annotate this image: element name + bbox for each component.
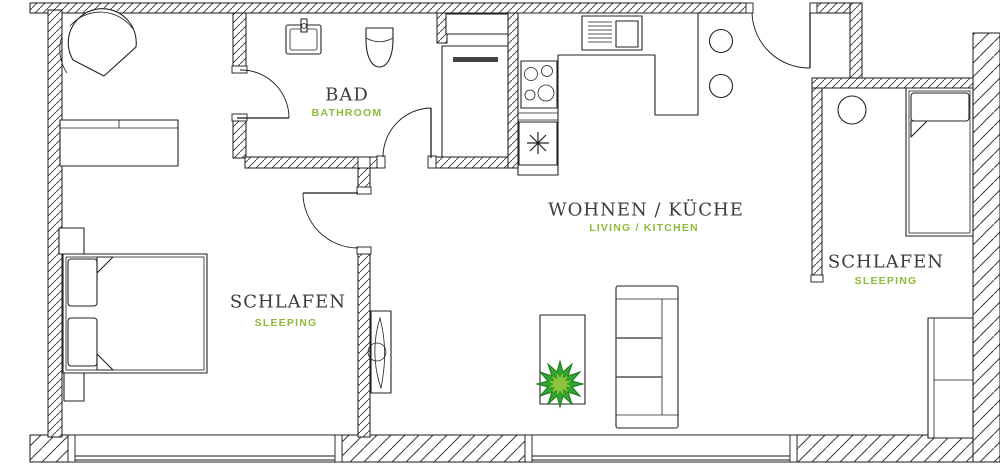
window-bottom-right [525,435,797,462]
wall-right [973,33,1000,462]
dresser [60,120,178,166]
door-entry [752,13,810,68]
wardrobe [928,318,973,438]
wall-bathroom-west-lower [233,118,246,158]
door-bathroom-south [383,108,431,158]
double-bed [63,254,207,373]
side-table-round [838,96,866,124]
wall-left [48,10,62,437]
room-label-bathroom: BAD [325,85,369,106]
shower [442,14,508,157]
toilet [366,28,393,67]
stool-bottom [710,75,733,98]
single-bed [906,88,973,236]
nightstand-top [59,228,84,254]
wall-kitchen-west [508,13,518,168]
wall-radiator [368,311,391,393]
wall-bathroom-south-east [434,157,518,168]
nightstand-bottom [64,373,84,401]
floor-plan: BAD BATHROOM WOHNEN / KÜCHE LIVING / KIT… [0,0,1000,467]
room-sublabel-living-kitchen: LIVING / KITCHEN [589,222,699,234]
kitchen-sink [582,16,642,50]
door-bedroom-left [303,193,358,248]
room-label-bedroom-right: SCHLAFEN [828,252,944,273]
sofa [616,286,678,428]
freezer [519,122,557,165]
room-label-bedroom-left: SCHLAFEN [230,292,346,313]
door-bathroom-west [237,70,289,118]
wall-step-horizontal [812,78,973,88]
wall-top-left [30,3,752,13]
wall-step-vertical [850,3,862,80]
wall-bedroom-right-west [812,88,822,280]
room-label-living-kitchen: WOHNEN / KÜCHE [548,200,744,221]
room-sublabel-bedroom-left: SLEEPING [255,317,318,329]
wall-divider-lower [358,252,370,437]
window-bottom-left [68,435,342,462]
floor-plan-drawing [0,0,1000,467]
stool-top [710,30,733,53]
room-sublabel-bathroom: BATHROOM [312,107,383,119]
stove [521,61,557,108]
bathroom-sink [286,19,321,54]
armchair [60,9,136,76]
wall-bathroom-west-upper [233,13,246,70]
room-sublabel-bedroom-right: SLEEPING [855,275,918,287]
